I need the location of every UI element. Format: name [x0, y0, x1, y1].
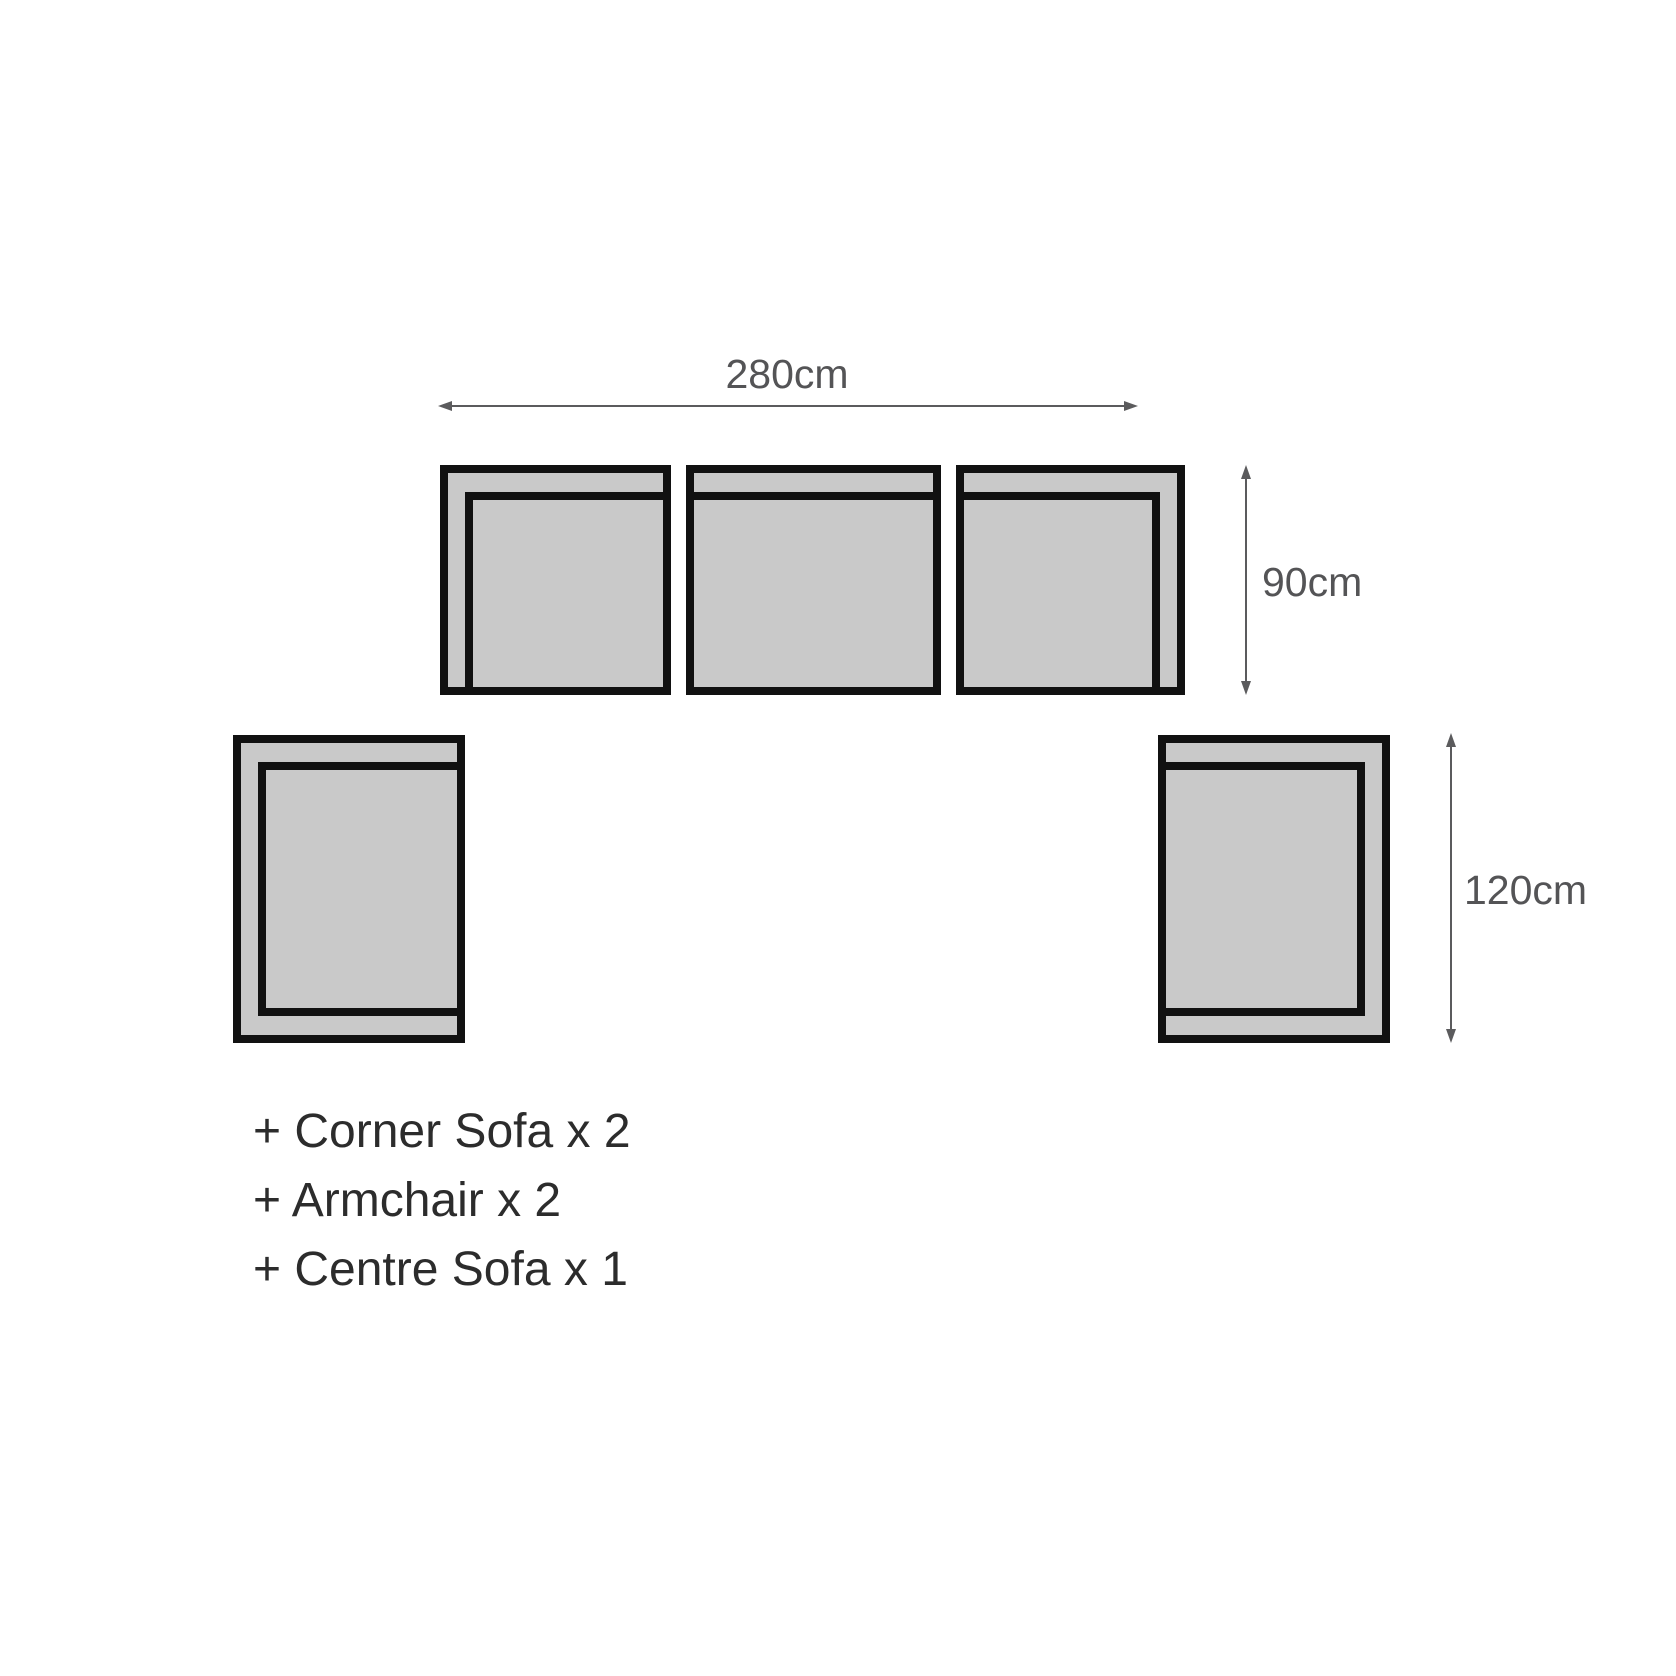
- armchair-left-seat: [258, 762, 457, 1016]
- arrow-down-icon: [1241, 681, 1251, 695]
- dimension-line: [441, 405, 1135, 407]
- corner-sofa-left-seat: [465, 492, 663, 687]
- armchair-depth-dimension-label: 120cm: [1464, 866, 1587, 914]
- centre-sofa: [686, 465, 941, 695]
- armchair-right: [1158, 735, 1390, 1043]
- armchair-depth-dimension-arrow: [1445, 733, 1457, 1043]
- arrow-right-icon: [1124, 401, 1138, 411]
- list-item-corner-sofa: + Corner Sofa x 2: [253, 1097, 631, 1166]
- armchair-left: [233, 735, 465, 1043]
- corner-sofa-right-seat: [964, 492, 1160, 687]
- width-dimension-label: 280cm: [725, 350, 848, 398]
- list-item-armchair: + Armchair x 2: [253, 1166, 631, 1235]
- arrow-down-icon: [1446, 1029, 1456, 1043]
- width-dimension-arrow: [438, 400, 1138, 412]
- centre-sofa-seat: [694, 492, 933, 687]
- sofa-dimensions-diagram: 280cm 90cm 120cm + Corner Sofa x 2 + Arm…: [0, 0, 1676, 1676]
- dimension-line: [1245, 468, 1247, 692]
- sofa-depth-dimension-label: 90cm: [1262, 558, 1362, 606]
- list-item-centre-sofa: + Centre Sofa x 1: [253, 1235, 631, 1304]
- armchair-right-seat: [1166, 762, 1365, 1016]
- dimension-line: [1450, 736, 1452, 1040]
- sofa-depth-dimension-arrow: [1240, 465, 1252, 695]
- contents-list: + Corner Sofa x 2 + Armchair x 2 + Centr…: [253, 1097, 631, 1304]
- corner-sofa-right: [956, 465, 1185, 695]
- corner-sofa-left: [440, 465, 671, 695]
